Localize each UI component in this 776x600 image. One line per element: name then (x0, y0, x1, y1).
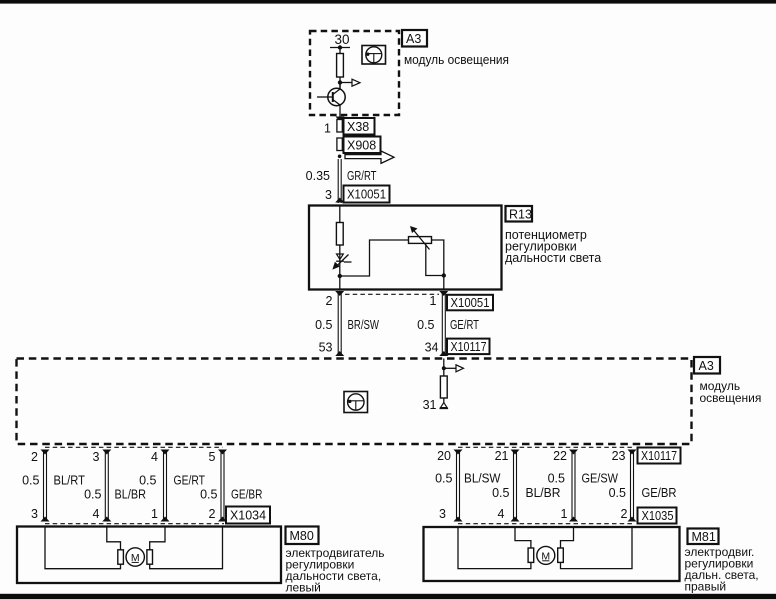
svg-text:GE/SW: GE/SW (582, 472, 619, 486)
svg-text:0.5: 0.5 (22, 474, 39, 488)
svg-text:0.5: 0.5 (492, 486, 509, 500)
svg-text:2: 2 (621, 507, 628, 521)
svg-text:R13: R13 (509, 208, 532, 222)
svg-text:освещения: освещения (700, 391, 762, 405)
svg-text:BL/BR: BL/BR (115, 488, 147, 502)
svg-text:21: 21 (495, 449, 509, 463)
svg-text:X10117: X10117 (451, 340, 487, 354)
svg-text:3: 3 (439, 507, 446, 521)
svg-text:0.5: 0.5 (84, 488, 101, 502)
svg-text:3: 3 (31, 507, 38, 521)
svg-text:BL/BR: BL/BR (526, 486, 561, 500)
svg-text:0.5: 0.5 (435, 472, 452, 486)
svg-text:0.5: 0.5 (548, 472, 565, 486)
svg-text:M80: M80 (290, 529, 314, 543)
svg-text:левый: левый (286, 581, 321, 595)
svg-text:X908: X908 (347, 139, 376, 153)
svg-text:BR/SW: BR/SW (348, 318, 380, 332)
svg-text:34: 34 (425, 341, 439, 355)
svg-text:X38: X38 (347, 120, 369, 134)
svg-text:2: 2 (326, 294, 333, 308)
svg-text:0.5: 0.5 (139, 474, 156, 488)
svg-text:2: 2 (31, 450, 38, 464)
svg-text:5: 5 (209, 450, 216, 464)
svg-text:22: 22 (553, 449, 567, 463)
svg-text:30: 30 (334, 32, 349, 47)
svg-text:1: 1 (151, 507, 158, 521)
svg-text:правый: правый (685, 580, 727, 594)
svg-text:0.5: 0.5 (200, 488, 217, 502)
svg-text:3: 3 (325, 188, 332, 202)
svg-text:A3: A3 (699, 359, 714, 373)
svg-text:дальности света: дальности света (505, 251, 601, 265)
svg-text:2: 2 (209, 507, 216, 521)
svg-text:BL/SW: BL/SW (464, 472, 501, 486)
svg-text:0.5: 0.5 (315, 318, 332, 332)
svg-text:4: 4 (498, 507, 505, 521)
svg-text:0.35: 0.35 (306, 169, 330, 183)
svg-text:X1035: X1035 (642, 509, 674, 523)
svg-text:GR/RT: GR/RT (347, 169, 377, 183)
svg-text:0.5: 0.5 (609, 486, 626, 500)
svg-text:23: 23 (612, 449, 626, 463)
svg-text:GE/BR: GE/BR (231, 488, 263, 502)
svg-text:3: 3 (93, 450, 100, 464)
svg-text:1: 1 (561, 507, 568, 521)
svg-text:20: 20 (437, 449, 451, 463)
svg-text:1: 1 (324, 122, 331, 136)
svg-text:A3: A3 (406, 32, 421, 46)
svg-text:BL/RT: BL/RT (54, 474, 86, 488)
svg-text:X10051: X10051 (347, 188, 386, 202)
svg-text:4: 4 (151, 450, 158, 464)
svg-text:GE/BR: GE/BR (642, 486, 677, 500)
svg-text:4: 4 (93, 507, 100, 521)
svg-text:M81: M81 (692, 530, 716, 544)
svg-text:модуль освещения: модуль освещения (404, 52, 509, 67)
svg-text:53: 53 (319, 341, 333, 355)
svg-text:X1034: X1034 (230, 509, 266, 523)
svg-text:GE/RT: GE/RT (450, 318, 479, 332)
svg-text:GE/RT: GE/RT (174, 474, 206, 488)
svg-text:31: 31 (423, 398, 437, 412)
svg-text:0.5: 0.5 (417, 318, 434, 332)
svg-text:X10051: X10051 (451, 296, 490, 310)
svg-text:X10117: X10117 (641, 449, 677, 463)
svg-text:1: 1 (430, 294, 437, 308)
